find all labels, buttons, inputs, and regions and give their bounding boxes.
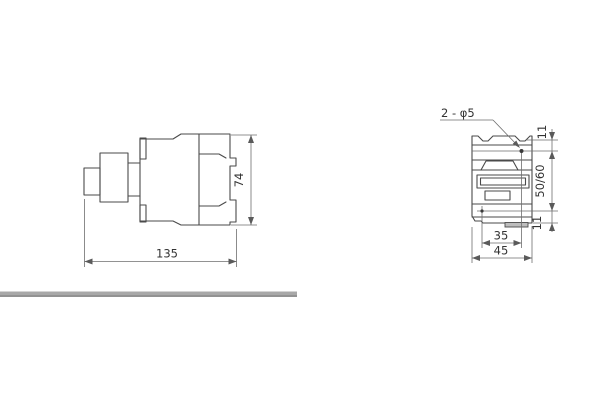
side-view-body-outline bbox=[140, 134, 236, 225]
front-view-width-dimension-label: 45 bbox=[494, 244, 509, 258]
side-view-height-dimension-label: 74 bbox=[232, 173, 246, 188]
arrowhead-11-top-outside bbox=[549, 132, 555, 140]
side-view-width-dimension-label: 135 bbox=[156, 247, 178, 261]
arrowhead-135-right bbox=[229, 259, 237, 265]
side-view-inner-step-top bbox=[199, 154, 226, 158]
vertical-pitch-dimension-label: 50/60 bbox=[533, 164, 547, 197]
bottom-offset-dimension-label: 11 bbox=[530, 216, 544, 231]
horizontal-pitch-dimension-label: 35 bbox=[494, 229, 509, 243]
leader-line-holes bbox=[493, 120, 518, 146]
bottom-divider-bar-shadow bbox=[0, 295, 297, 297]
technical-drawing-canvas: 135 74 bbox=[0, 0, 600, 400]
arrowhead-35-left bbox=[482, 240, 490, 246]
arrowhead-35-right bbox=[514, 240, 522, 246]
arrowhead-5060-bottom bbox=[549, 203, 555, 211]
dimension-drawing-svg: 135 74 bbox=[0, 0, 600, 400]
front-view-label-window bbox=[485, 191, 510, 200]
arrowhead-5060-top bbox=[549, 151, 555, 159]
side-view-terminal-slot-top bbox=[140, 138, 146, 159]
mounting-hole-top-right bbox=[520, 149, 524, 153]
arrowhead-45-left bbox=[472, 255, 480, 261]
side-view-terminal-slot-bottom bbox=[140, 205, 146, 222]
mounting-hole-bottom-left bbox=[480, 209, 483, 212]
arrowhead-74-top bbox=[248, 135, 254, 143]
holes-callout-label: 2 - φ5 bbox=[441, 106, 475, 120]
arrowhead-11-bottom-outside bbox=[549, 223, 555, 231]
side-view-front-block bbox=[84, 168, 100, 195]
top-offset-dimension-label: 11 bbox=[535, 125, 549, 140]
side-view-inner-step-bottom bbox=[199, 202, 226, 206]
front-view-trapezoid-boss bbox=[481, 161, 518, 170]
arrowhead-74-bottom bbox=[248, 217, 254, 225]
side-view-drawing bbox=[84, 134, 236, 225]
front-view-bottom-tab bbox=[505, 223, 528, 228]
arrowhead-45-right bbox=[524, 255, 532, 261]
arrowhead-135-left bbox=[85, 259, 93, 265]
front-view-drawing bbox=[472, 136, 532, 227]
front-view-nameplate-inner bbox=[481, 178, 526, 185]
side-view-coil-block bbox=[100, 153, 128, 202]
